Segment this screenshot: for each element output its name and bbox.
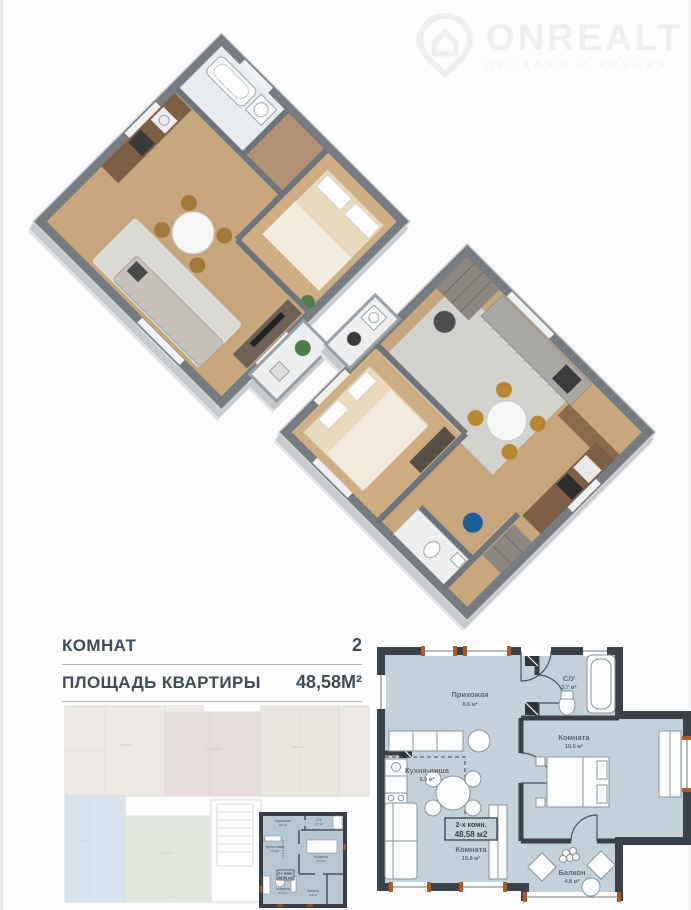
- svg-text:4.8 м²: 4.8 м²: [309, 893, 317, 897]
- onrealt-watermark: ONREALT ПРОДАЖА И АРЕНДА: [414, 12, 683, 78]
- svg-text:8.6 м²: 8.6 м²: [279, 823, 287, 827]
- svg-text:5.3 м²: 5.3 м²: [271, 849, 279, 853]
- label-bedroom: Комната: [558, 733, 590, 742]
- svg-text:10.5 м²: 10.5 м²: [316, 859, 325, 863]
- svg-text:15.8 м²: 15.8 м²: [278, 891, 287, 895]
- mini-unit-area: 48.58 м2: [278, 876, 293, 880]
- building-floor-miniplan: 2-х комн. 48.58 м2 Прихожая 8.6 м² С/У 3…: [59, 700, 375, 910]
- unit-area-label: 48.58 м2: [455, 830, 488, 839]
- svg-text:15.8 м²: 15.8 м²: [462, 855, 480, 862]
- label-bath: С/У: [563, 674, 576, 683]
- hall-cabinet: [389, 731, 463, 751]
- unit-info-box: 2-х комн. 48.58 м2: [445, 818, 497, 840]
- summary-row-rooms: КОМНАТ 2: [62, 628, 362, 665]
- miniplan-highlighted-unit: 2-х комн. 48.58 м2 Прихожая 8.6 м² С/У 3…: [260, 814, 346, 907]
- detailed-floor-plan: 2-х комн. 48.58 м2 Прихожая 8.6 м² С/У 3…: [375, 645, 691, 910]
- watermark-tagline: ПРОДАЖА И АРЕНДА: [486, 60, 683, 71]
- rooms-label: КОМНАТ: [62, 636, 136, 656]
- label-hall: Прихожая: [451, 690, 488, 699]
- balcony-table: [582, 878, 600, 896]
- svg-text:4.8 м²: 4.8 м²: [564, 878, 579, 885]
- svg-text:8.6 м²: 8.6 м²: [462, 701, 477, 708]
- label-kitchen: Кухня-ниша: [405, 766, 450, 775]
- apartment-summary: КОМНАТ 2 ПЛОЩАДЬ КВАРТИРЫ 48,58М²: [62, 628, 362, 702]
- area-label: ПЛОЩАДЬ КВАРТИРЫ: [62, 673, 261, 693]
- rooms-value: 2: [352, 635, 362, 656]
- area-value: 48,58М²: [296, 672, 362, 693]
- svg-text:3.7 м²: 3.7 м²: [561, 684, 576, 691]
- svg-text:3.7 м²: 3.7 м²: [315, 822, 323, 826]
- svg-text:10.5 м²: 10.5 м²: [565, 743, 583, 750]
- label-living: Комната: [455, 845, 487, 854]
- hall-pouf: [468, 730, 490, 752]
- onrealt-pin-house-icon: [414, 12, 476, 78]
- unit-type-label: 2-х комн.: [455, 822, 486, 829]
- summary-row-area: ПЛОЩАДЬ КВАРТИРЫ 48,58М²: [62, 665, 362, 702]
- svg-text:5.3 м²: 5.3 м²: [419, 776, 434, 783]
- watermark-brand: ONREALT: [486, 19, 683, 56]
- page-edge-strip-left: [0, 0, 3, 910]
- label-balcony: Балкон: [558, 868, 585, 877]
